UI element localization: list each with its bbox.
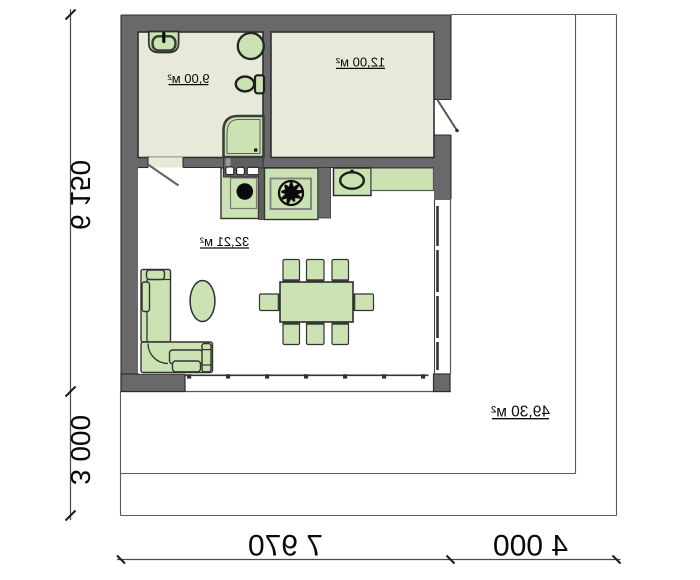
svg-text:7 970: 7 970: [248, 530, 323, 563]
svg-text:12,00 м²: 12,00 м²: [335, 54, 385, 69]
svg-text:3 000: 3 000: [65, 415, 96, 485]
svg-text:49,30 м²: 49,30 м²: [491, 404, 550, 421]
svg-text:9,00 м²: 9,00 м²: [167, 71, 210, 86]
svg-text:4 000: 4 000: [493, 530, 568, 563]
svg-text:32,21 м²: 32,21 м²: [199, 234, 249, 249]
svg-text:6 150: 6 150: [65, 160, 96, 230]
